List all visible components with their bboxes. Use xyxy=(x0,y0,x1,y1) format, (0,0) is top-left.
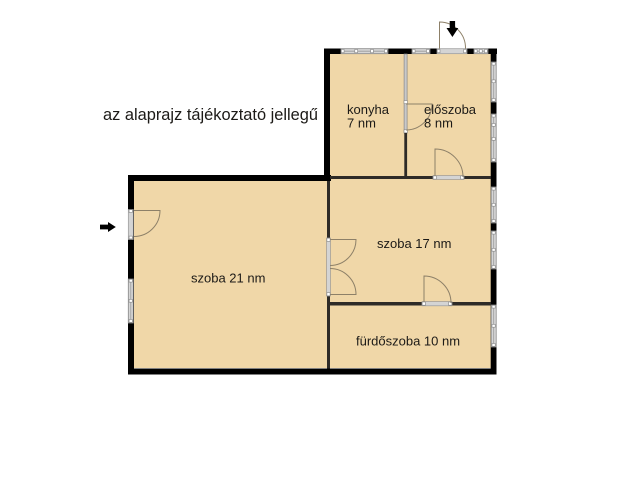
svg-text:7 nm: 7 nm xyxy=(347,116,376,131)
svg-text:szoba 17 nm: szoba 17 nm xyxy=(377,236,451,251)
svg-text:fürdőszoba 10 nm: fürdőszoba 10 nm xyxy=(356,334,460,349)
svg-text:az alaprajz tájékoztató jelleg: az alaprajz tájékoztató jellegű xyxy=(103,106,318,124)
svg-text:szoba 21 nm: szoba 21 nm xyxy=(191,271,265,286)
svg-text:8 nm: 8 nm xyxy=(424,116,453,131)
